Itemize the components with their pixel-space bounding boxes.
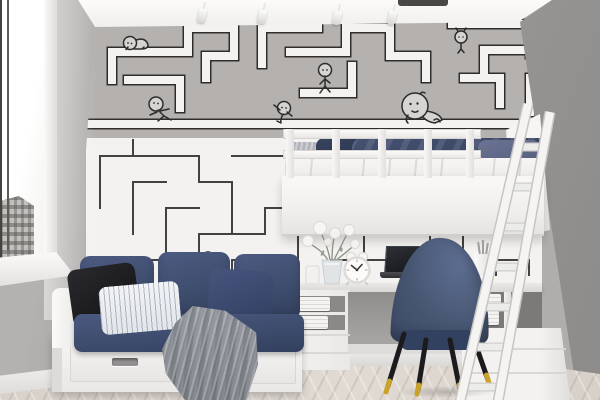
- recessed-light-slot: [398, 0, 448, 6]
- window-frame: [44, 0, 57, 266]
- drawer-handle: [112, 358, 138, 366]
- bed-rail-post: [286, 129, 294, 178]
- bed-rail-post: [332, 129, 340, 178]
- striped-pillow: [98, 281, 182, 336]
- room-photo: [0, 0, 600, 400]
- bed-rail-post: [378, 129, 386, 178]
- flower-vase: [298, 218, 368, 286]
- city-view: [0, 196, 34, 258]
- window-sash-edge: [7, 0, 9, 250]
- bed-rail-post: [424, 129, 432, 178]
- loft-bed-ladder: [438, 92, 573, 400]
- window-frame-edge: [0, 0, 2, 258]
